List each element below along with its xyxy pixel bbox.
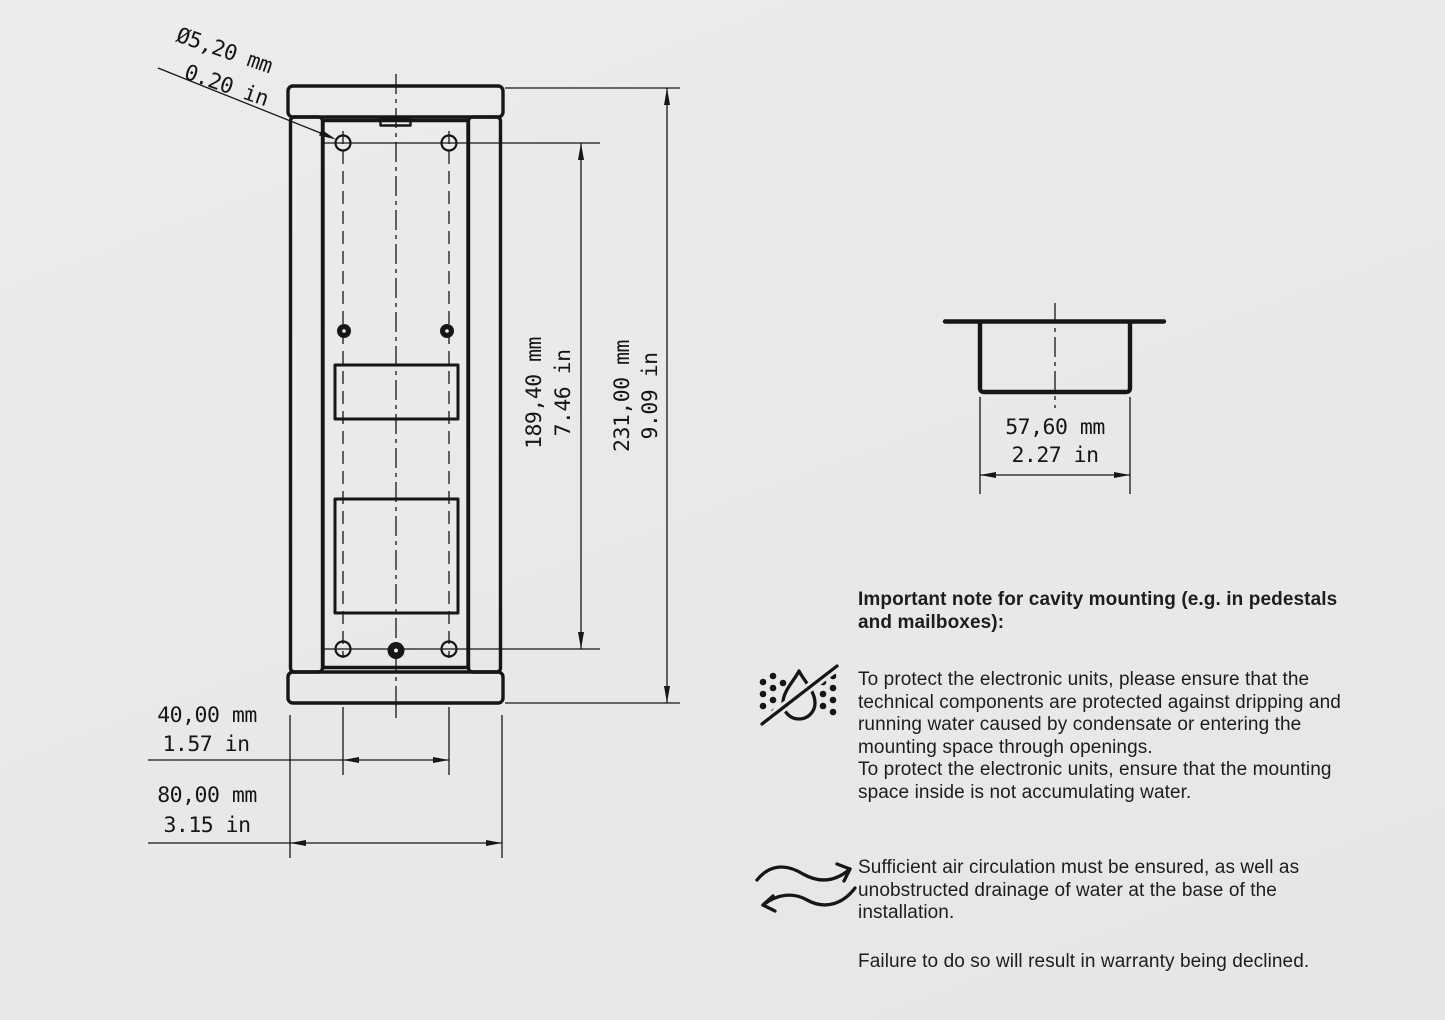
section-view: 57,60 mm 2.27 in xyxy=(945,303,1164,494)
note-line: space inside is not accumulating water. xyxy=(858,782,1378,805)
total-height-in-label: 9.09 in xyxy=(638,352,663,439)
note-line: running water caused by condensate or en… xyxy=(858,714,1378,737)
right-rail xyxy=(469,117,501,672)
total-height-mm-label: 231,00 mm xyxy=(610,340,635,452)
airflow-arrow-left xyxy=(763,888,855,905)
water-protection-note: To protect the electronic units, please … xyxy=(858,669,1378,804)
left-rail xyxy=(291,117,323,672)
warranty-note: Failure to do so will result in warranty… xyxy=(858,951,1378,974)
note-line: technical components are protected again… xyxy=(858,692,1378,715)
heading-line: Important note for cavity mounting (e.g.… xyxy=(858,589,1378,612)
hole-span-v-mm-label: 189,40 mm xyxy=(522,337,547,449)
note-line: installation. xyxy=(858,902,1378,925)
total-width-mm-label: 80,00 mm xyxy=(157,783,257,808)
note-line: To protect the electronic units, ensure … xyxy=(858,759,1378,782)
note-line: Failure to do so will result in warranty… xyxy=(858,951,1378,974)
cavity-mounting-heading: Important note for cavity mounting (e.g.… xyxy=(858,589,1378,634)
hole-span-h-in-label: 1.57 in xyxy=(162,732,249,757)
technical-drawing-page: Ø5,20 mm 0.20 in 189,40 mm 7.46 in 231,0… xyxy=(0,0,1445,1020)
note-line: mounting space through openings. xyxy=(858,737,1378,760)
cavity-depth-in-label: 2.27 in xyxy=(1011,443,1098,468)
airflow-arrow-right xyxy=(757,867,850,880)
hole-span-h-mm-label: 40,00 mm xyxy=(157,703,257,728)
no-dripping-water-icon xyxy=(760,666,837,724)
note-line: To protect the electronic units, please … xyxy=(858,669,1378,692)
air-circulation-note: Sufficient air circulation must be ensur… xyxy=(858,857,1378,925)
total-width-in-label: 3.15 in xyxy=(163,813,250,838)
cavity-depth-mm-label: 57,60 mm xyxy=(1005,415,1105,440)
front-view-dimensions: Ø5,20 mm 0.20 in 189,40 mm 7.46 in 231,0… xyxy=(148,23,680,858)
heading-line: and mailboxes): xyxy=(858,612,1378,635)
hole-span-v-in-label: 7.46 in xyxy=(551,349,576,436)
air-circulation-icon xyxy=(757,864,855,911)
note-line: Sufficient air circulation must be ensur… xyxy=(858,857,1378,880)
note-line: unobstructed drainage of water at the ba… xyxy=(858,880,1378,903)
